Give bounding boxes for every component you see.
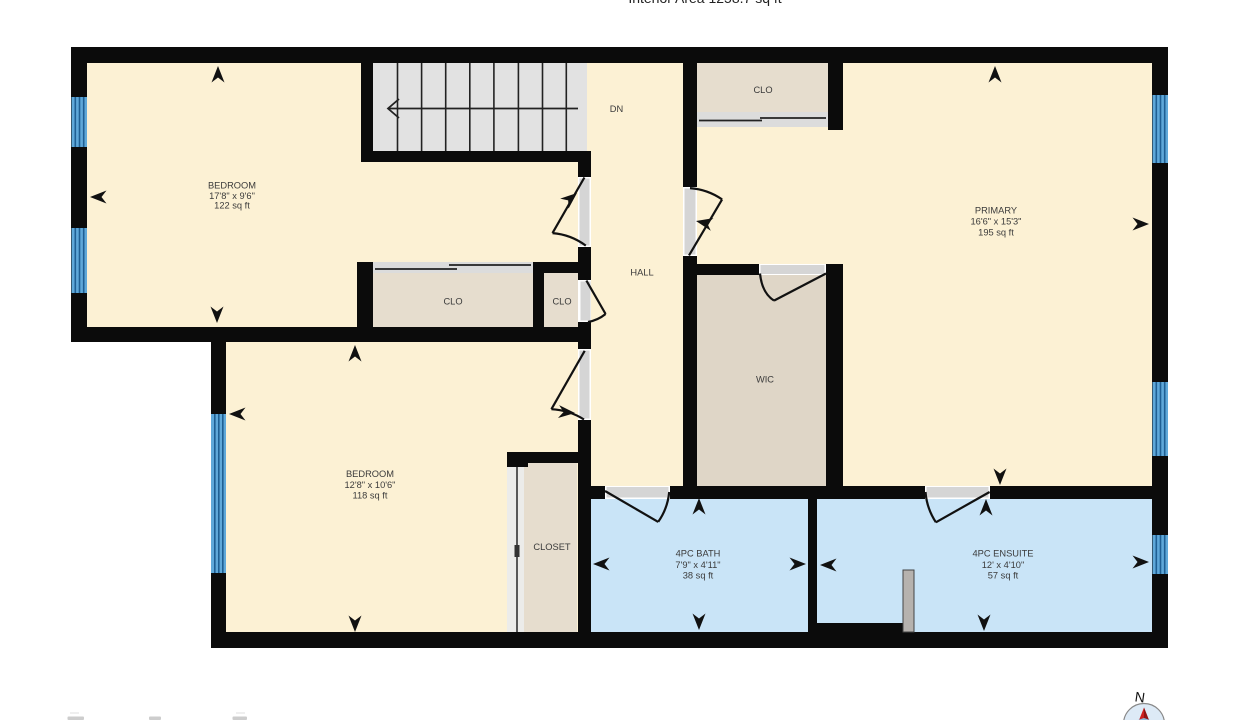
svg-text:12'8" x 10'6": 12'8" x 10'6" <box>345 480 396 490</box>
svg-text:16'6" x 15'3": 16'6" x 15'3" <box>971 217 1022 227</box>
svg-text:CLOSET: CLOSET <box>533 542 571 552</box>
svg-text:BEDROOM: BEDROOM <box>208 181 256 191</box>
svg-text:Interior Area 1258.7 sq ft: Interior Area 1258.7 sq ft <box>628 0 781 6</box>
svg-text:7'9" x 4'11": 7'9" x 4'11" <box>675 560 720 570</box>
svg-text:HALL: HALL <box>630 268 653 278</box>
svg-text:CLO: CLO <box>443 297 462 307</box>
svg-text:PRIMARY: PRIMARY <box>975 206 1017 216</box>
svg-text:BEDROOM: BEDROOM <box>346 469 394 479</box>
svg-text:118 sq ft: 118 sq ft <box>353 491 388 501</box>
svg-text:4PC ENSUITE: 4PC ENSUITE <box>973 549 1034 559</box>
svg-text:DN: DN <box>610 104 623 114</box>
svg-text:38 sq ft: 38 sq ft <box>683 571 714 581</box>
svg-text:122 sq ft: 122 sq ft <box>214 201 250 211</box>
svg-text:57 sq ft: 57 sq ft <box>988 571 1019 581</box>
svg-text:17'8" x 9'6": 17'8" x 9'6" <box>209 191 255 201</box>
svg-text:195 sq ft: 195 sq ft <box>978 228 1014 238</box>
svg-text:CLO: CLO <box>753 85 772 95</box>
svg-text:4PC BATH: 4PC BATH <box>676 549 721 559</box>
svg-text:WIC: WIC <box>756 375 774 385</box>
svg-text:12' x 4'10": 12' x 4'10" <box>982 560 1025 570</box>
svg-text:CLO: CLO <box>552 297 571 307</box>
